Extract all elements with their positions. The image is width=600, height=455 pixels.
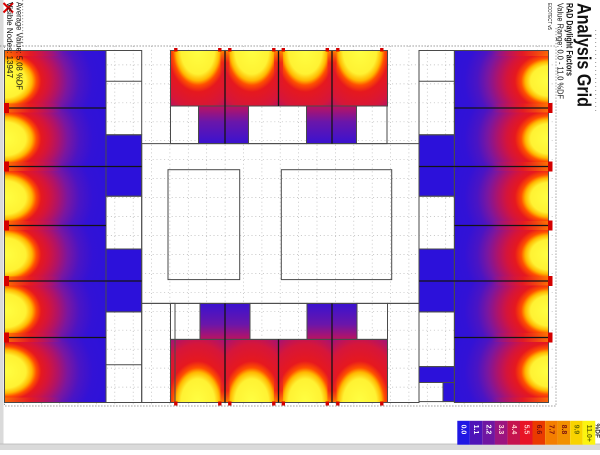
svg-text:7.7: 7.7 [547,425,554,435]
svg-text:9.9: 9.9 [572,425,579,435]
svg-text:11.0+: 11.0+ [585,425,592,442]
svg-text:%DF: %DF [594,424,600,438]
svg-text:1.1: 1.1 [472,425,479,435]
svg-text:2.2: 2.2 [485,425,492,435]
svg-text:4.4: 4.4 [510,425,517,435]
svg-text:6.6: 6.6 [535,425,542,435]
svg-text:Analysis Grid: Analysis Grid [573,3,594,107]
svg-text:8.8: 8.8 [560,425,567,435]
svg-text:Value Range: 0.0 - 11.0 %DF: Value Range: 0.0 - 11.0 %DF [556,3,565,99]
svg-text:3.3: 3.3 [497,425,504,435]
svg-text:0.0: 0.0 [460,425,467,435]
svg-text:ECOTECT v5: ECOTECT v5 [546,3,552,30]
svg-text:Visible Nodes: 13947: Visible Nodes: 13947 [5,2,15,78]
svg-text:Average Value: 5.08 %DF: Average Value: 5.08 %DF [15,2,25,90]
svg-text:5.5: 5.5 [522,425,529,435]
svg-text:RAD Daylight Factors: RAD Daylight Factors [564,3,574,76]
